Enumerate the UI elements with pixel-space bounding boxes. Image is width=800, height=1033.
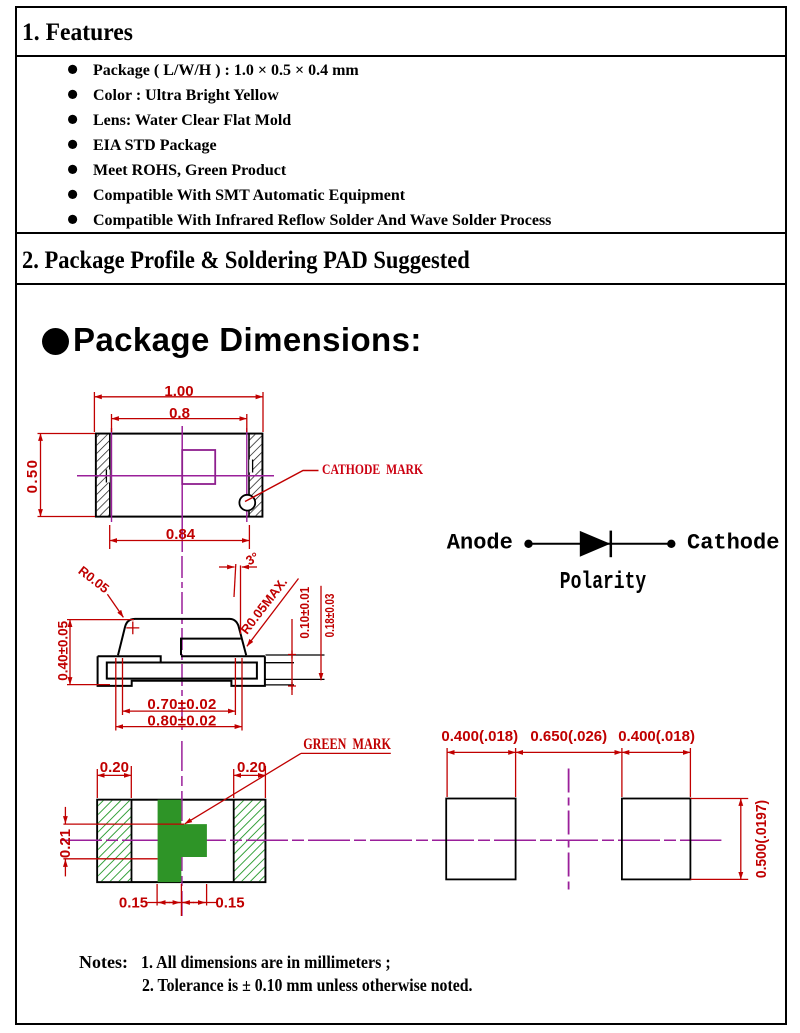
svg-text:Polarity: Polarity [560, 569, 647, 596]
svg-text:Anode: Anode [447, 530, 513, 555]
svg-text:0.400(.018): 0.400(.018) [618, 728, 695, 745]
svg-text:Package Dimensions:: Package Dimensions: [73, 321, 422, 358]
svg-text:3°: 3° [243, 549, 261, 568]
svg-text:0.80±0.02: 0.80±0.02 [147, 713, 216, 730]
svg-text:0.70±0.02: 0.70±0.02 [147, 696, 216, 713]
svg-text:R0.05MAX.: R0.05MAX. [237, 575, 290, 637]
svg-text:R0.05: R0.05 [75, 563, 112, 596]
svg-text:1.00: 1.00 [164, 383, 193, 400]
svg-text:0.8: 0.8 [169, 405, 190, 422]
svg-text:0.40±0.05: 0.40±0.05 [55, 620, 70, 680]
svg-text:0.84: 0.84 [166, 526, 196, 543]
svg-text:0.18±0.03: 0.18±0.03 [324, 594, 338, 638]
svg-text:0.10±0.01: 0.10±0.01 [297, 587, 312, 639]
svg-text:0.15: 0.15 [215, 895, 244, 912]
svg-text:0.50: 0.50 [24, 459, 41, 494]
svg-text:GREEN MARK: GREEN MARK [303, 735, 391, 753]
svg-text:0.20: 0.20 [100, 759, 129, 776]
svg-text:0.15: 0.15 [119, 895, 148, 912]
svg-text:0.400(.018): 0.400(.018) [441, 728, 518, 745]
svg-text:0.500(.0197): 0.500(.0197) [754, 800, 771, 878]
svg-text:0.21: 0.21 [57, 829, 74, 858]
svg-text:0.650(.026): 0.650(.026) [530, 728, 607, 745]
svg-text:CATHODE MARK: CATHODE MARK [322, 461, 424, 478]
svg-text:0.20: 0.20 [237, 759, 266, 776]
svg-text:Cathode: Cathode [687, 530, 779, 555]
